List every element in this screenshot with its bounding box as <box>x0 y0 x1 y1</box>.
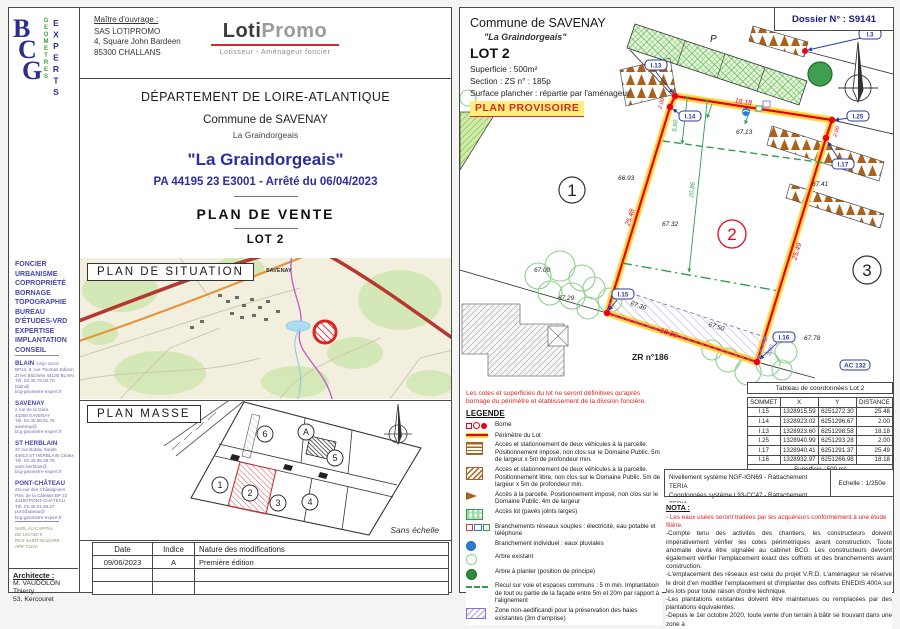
lotipromo-rule <box>211 44 339 46</box>
legend-title: LEGENDE <box>466 409 662 418</box>
service-item: BUREAU <box>15 308 67 318</box>
legend-item: Zone non-aedificandi pour la préservatio… <box>466 607 662 622</box>
coord-y: 6251266.98 <box>818 455 856 465</box>
borne-i13: I.13 <box>651 63 662 70</box>
borne-i16: I.16 <box>779 335 790 342</box>
nota-title: NOTA : <box>666 503 892 512</box>
rev-nature <box>195 569 449 582</box>
borne-icon <box>466 421 490 429</box>
coord-h-dist: DISTANCE <box>856 398 892 408</box>
maitre-ouvrage: Maître d'ouvrage : SAS LOTIPROMO 4, Squa… <box>94 15 181 58</box>
logo-word-geometres: GEOMETRES <box>43 18 49 100</box>
elev-bottom-right: 67.78 <box>804 335 821 342</box>
rev-header-nature: Nature des modifications <box>195 543 449 556</box>
coord-sommet: I.16 <box>748 455 781 465</box>
coord-row: I.16 1328932.97 6251266.98 18.18 <box>748 455 893 465</box>
maitre-label: Maître d'ouvrage : <box>94 15 181 26</box>
borne-i25: I.25 <box>853 114 864 121</box>
elev-trees-b: 67.29 <box>558 295 575 302</box>
zone-non-aedificandi-icon <box>466 607 490 619</box>
acces-libre-icon <box>466 466 490 480</box>
plan-provisoire-badge: PLAN PROVISOIRE <box>470 101 584 117</box>
grass-wedge-hatch <box>460 112 496 170</box>
legend-block: Les cotes et superficies du lot ne seron… <box>466 390 662 625</box>
service-item: IMPLANTATION <box>15 336 67 346</box>
legend-text: Arbre à planter (position de principe) <box>495 568 595 575</box>
coord-row: I.25 1328940.99 6251293.28 2.00 <box>748 436 893 446</box>
rp-commune: Commune de SAVENAY <box>470 16 606 30</box>
parcel-ac-label: AC 132 <box>844 363 866 370</box>
page-left: B C G GEOMETRES EXPERTS FONCIERURBANISME… <box>8 7 452 593</box>
rp-surface-plancher: Surface plancher : répartie par l'aménag… <box>470 88 630 98</box>
nota-paragraph: -Depuis le 1er octobre 2020, toute vente… <box>666 612 892 628</box>
service-item: D'ÉTUDES-VRD <box>15 317 67 327</box>
coord-x: 1328932.97 <box>780 455 818 465</box>
services-list: FONCIERURBANISMECOPROPRIÉTÉBORNAGETOPOGR… <box>15 260 67 355</box>
maitre-line: 4, Square John Bardeen <box>94 37 181 48</box>
logo-word-experts: EXPERTS <box>51 18 61 104</box>
office-pont-chateau: PONT-CHÂTEAU ZIa rue des ChâtaigniersPar… <box>15 480 77 521</box>
nota-paragraph: -L'emplacement des réseaux est celui du … <box>666 571 892 596</box>
lot2-label: 2 <box>247 488 252 498</box>
rev-date <box>93 582 153 595</box>
service-item: COPROPRIÉTÉ <box>15 279 67 289</box>
rev-row <box>93 569 449 582</box>
title-rule <box>234 196 298 197</box>
legend-warning-note: Les cotes et superficies du lot ne seron… <box>466 390 662 406</box>
compass-icon <box>838 42 878 102</box>
architect-name: M. VAUDOLON Thierry <box>13 580 78 596</box>
legend-item: Arbre à planter (position de principe) <box>466 568 662 580</box>
lot3-label: 3 <box>275 498 280 508</box>
dim-jog-left: 2.00 <box>657 97 666 111</box>
lot2-circle: 2 <box>727 225 736 244</box>
nota-block: NOTA : - Les eaux usées seront traitées … <box>666 503 892 629</box>
lotipromo-loti: Loti <box>223 20 262 42</box>
page-right: P <box>459 7 894 593</box>
office-city: ST HERBLAIN <box>15 440 57 447</box>
office-line: bcg-geometre-expert.fr <box>15 515 77 521</box>
left-header: Maître d'ouvrage : SAS LOTIPROMO 4, Squa… <box>80 8 451 79</box>
parcel-zr-label: ZR n°186 <box>632 352 669 362</box>
coord-x: 1328923.02 <box>780 417 818 427</box>
maitre-line: SAS LOTIPROMO <box>94 27 181 38</box>
borne-i15: I.15 <box>618 292 629 299</box>
arbre-existant-icon <box>466 553 490 565</box>
coord-x: 1328940.41 <box>780 445 818 455</box>
coord-row: I.15 1328915.59 6251272.30 25.48 <box>748 407 893 417</box>
rev-nature <box>195 582 449 595</box>
echelle-label: Echelle : 1/250e <box>830 470 893 496</box>
title-commune: Commune de SAVENAY <box>80 114 451 126</box>
dim-recul-depth: 20.86 <box>688 181 697 199</box>
rev-indice <box>153 569 195 582</box>
paves-icon <box>466 508 490 520</box>
coord-sommet: I.17 <box>748 445 781 455</box>
title-rule <box>234 228 298 229</box>
architect-address: 53, Kercouret <box>13 596 78 604</box>
map-lake <box>286 321 310 331</box>
rev-row: 09/06/2023 A Première édition <box>93 556 449 569</box>
legend-item: Accès et stationnement de deux véhicules… <box>466 466 662 488</box>
service-item: URBANISME <box>15 270 67 280</box>
coord-distance: 18.18 <box>856 455 892 465</box>
lotipromo-logo: LotiPromo Lotisseur - Aménageur foncier <box>200 21 350 56</box>
tree-to-plant <box>808 62 832 86</box>
legend-text: Recul sur voie et espaces communs : 5 m … <box>495 582 662 604</box>
rev-header-date: Date <box>93 543 153 556</box>
lot6-label: 6 <box>262 429 267 439</box>
rev-row <box>93 582 449 595</box>
coffret-icon <box>756 106 762 111</box>
legend-item: Recul sur voie et espaces communs : 5 m … <box>466 582 662 604</box>
lot1-label: 1 <box>217 480 222 490</box>
borne-i17: I.17 <box>838 162 849 169</box>
legend-text: Arbre existant <box>495 553 533 560</box>
left-content: Maître d'ouvrage : SAS LOTIPROMO 4, Squa… <box>79 8 451 592</box>
sidebar-divider <box>15 355 59 356</box>
coord-sommet: I.15 <box>748 407 781 417</box>
lotipromo-promo: Promo <box>261 20 327 42</box>
lot5-label: 5 <box>332 453 337 463</box>
title-lieu: La Graindorgeais <box>80 130 451 140</box>
plan-masse-label: PLAN MASSE <box>87 405 201 423</box>
coord-h-sommet: SOMMET <box>748 398 781 408</box>
coord-x: 1328940.99 <box>780 436 818 446</box>
legend-item: Arbre existant <box>466 553 662 565</box>
borne-i3: I.3 <box>866 32 874 39</box>
map-town-label: SAVENAY <box>266 268 292 274</box>
masse-compass-icon <box>384 404 412 444</box>
coord-x: 1328915.59 <box>780 407 818 417</box>
nota-red-line: - Les eaux usées seront traitées par les… <box>666 514 892 530</box>
acces-impose-icon <box>466 441 490 455</box>
legend-text: Accès et stationnement de deux véhicules… <box>495 466 662 488</box>
office-line: bcg-geometre-expert.fr <box>15 429 77 435</box>
elev-top: 67.13 <box>736 129 753 136</box>
coord-y: 6251298.58 <box>818 426 856 436</box>
coord-table: SOMMET X Y DISTANCE I.15 1328915.59 6251… <box>747 397 893 475</box>
legal-block: SARL AU CAPITALDE 194 000 €RCS SAINT-NAZ… <box>15 526 60 550</box>
rp-section: Section : ZS n° : 185p <box>470 76 551 86</box>
dim-jog-right: 2.00 <box>832 125 841 139</box>
elev-right: 67.41 <box>812 181 829 188</box>
reseaux-icon <box>466 523 490 531</box>
service-item: TOPOGRAPHIE <box>15 298 67 308</box>
office-line: bcg-geometre-expert.fr <box>15 389 77 395</box>
office-tag: Siège social <box>36 361 59 366</box>
lot4-label: 4 <box>307 497 312 507</box>
maitre-line: 85300 CHALLANS <box>94 48 181 59</box>
coord-x: 1328923.60 <box>780 426 818 436</box>
lotA-label: A <box>303 427 309 437</box>
legend-text: Branchement individuel : eaux pluviales <box>495 540 604 547</box>
legal-line: APE 7112A <box>15 544 60 550</box>
elev-center: 67.32 <box>662 221 679 228</box>
legend-text: Zone non-aedificandi pour la préservatio… <box>495 607 662 622</box>
coord-h-y: Y <box>818 398 856 408</box>
coffret-icon <box>763 101 770 107</box>
service-item: CONSEIL <box>15 346 67 356</box>
service-item: FONCIER <box>15 260 67 270</box>
coord-distance: 25.49 <box>856 445 892 455</box>
coord-sommet: I.25 <box>748 436 781 446</box>
coord-row: I.14 1328923.02 6251296.67 2.00 <box>748 417 893 427</box>
architect-block: Architecte : M. VAUDOLON Thierry 53, Ker… <box>9 568 78 593</box>
plan-situation-label: PLAN DE SITUATION <box>87 263 254 281</box>
legend-text: Accès à la parcelle. Positionnement impo… <box>495 491 662 506</box>
lotipromo-tagline: Lotisseur - Aménageur foncier <box>200 49 350 56</box>
title-plan-de-vente: PLAN DE VENTE <box>80 206 451 222</box>
lot3-circle: 3 <box>862 261 871 280</box>
elev-trees-a: 67.00 <box>534 267 551 274</box>
coord-y: 6251296.67 <box>818 417 856 427</box>
office-city: SAVENAY <box>15 400 44 407</box>
coord-distance: 25.48 <box>856 407 892 417</box>
lot1-circle: 1 <box>567 181 576 200</box>
legend-text: Accès et stationnement de deux véhicules… <box>495 441 662 463</box>
plan-situation-box: PLAN DE SITUATION <box>80 258 451 401</box>
coord-y: 6251272.30 <box>818 407 856 417</box>
legend-text: Accès lot (pavés joints larges) <box>495 508 577 515</box>
architect-label: Architecte : <box>13 571 78 580</box>
rp-lieu: "La Graindorgeais" <box>484 32 567 42</box>
office-city: PONT-CHÂTEAU <box>15 480 65 487</box>
legend-text: Borne <box>495 421 512 428</box>
rev-indice <box>153 582 195 595</box>
bcg-letters: B C G <box>13 18 41 104</box>
coord-table-title: Tableau de coordonnées Lot 2 <box>747 382 893 394</box>
elev-lot1: 66.93 <box>618 175 635 182</box>
existing-building <box>462 304 568 376</box>
legend-item: Accès lot (pavés joints larges) <box>466 508 662 520</box>
nivellement-line: Nivellement système NGF-IGN69 - Rattache… <box>669 473 826 491</box>
rev-date: 09/06/2023 <box>93 556 153 569</box>
service-item: EXPERTISE <box>15 327 67 337</box>
coord-row: I.13 1328923.60 6251298.58 18.18 <box>748 426 893 436</box>
rev-nature: Première édition <box>195 556 449 569</box>
dim-recul-front: 5.60 <box>671 119 679 132</box>
coord-sommet: I.14 <box>748 417 781 427</box>
coord-y: 6251291.37 <box>818 445 856 455</box>
plan-masse-box: PLAN MASSE <box>80 400 451 541</box>
coord-row: I.17 1328940.41 6251291.37 25.49 <box>748 445 893 455</box>
coord-h-x: X <box>780 398 818 408</box>
office-city: BLAIN <box>15 360 34 367</box>
legend-item: Branchement individuel : eaux pluviales <box>466 540 662 551</box>
coord-distance: 2.00 <box>856 417 892 427</box>
title-permit: PA 44195 23 E3001 - Arrêté du 06/04/2023 <box>80 176 451 188</box>
estate-boundary <box>191 402 421 535</box>
legend-item: Accès et stationnement de deux véhicules… <box>466 441 662 463</box>
sidebar-divider <box>15 521 59 522</box>
office-st-herblain: ST HERBLAIN 37 rue Bobby Sands44813 ST H… <box>15 440 77 475</box>
perimetre-icon <box>466 432 490 438</box>
office-blain: BLAIN Siège social BP14, 9, rue Thomas E… <box>15 360 77 395</box>
lot-number-labels: 1 2 3 <box>559 177 881 284</box>
coord-sommet: I.13 <box>748 426 781 436</box>
service-item: BORNAGE <box>15 289 67 299</box>
reference-box: Nivellement système NGF-IGN69 - Rattache… <box>664 469 894 497</box>
legend-text: Périmètre du Lot <box>495 432 541 439</box>
coordinates-block: Tableau de coordonnées Lot 2 SOMMET X Y … <box>747 382 893 475</box>
parking-label: P <box>710 34 717 45</box>
logo-letter-g: G <box>22 60 41 81</box>
coord-y: 6251293.28 <box>818 436 856 446</box>
rp-lot: LOT 2 <box>470 45 510 61</box>
title-lot: LOT 2 <box>80 234 451 246</box>
legend-item: Borne <box>466 421 662 429</box>
rev-date <box>93 569 153 582</box>
nota-paragraph: -Les plantations existantes doivent être… <box>666 596 892 612</box>
nota-paragraph: -Compte tenu des activités des chantiers… <box>666 530 892 571</box>
bcg-logo: B C G GEOMETRES EXPERTS <box>13 18 61 104</box>
dossier-number: Dossier N° : S9141 <box>774 8 893 31</box>
eaux-pluviales-icon <box>466 540 490 551</box>
acces-parcelle-icon <box>466 491 490 500</box>
recul-line-icon <box>466 582 490 588</box>
sans-echelle-label: Sans échelle <box>390 525 439 535</box>
legend-item: Accès à la parcelle. Positionnement impo… <box>466 491 662 506</box>
office-savenay: SAVENAY 2 rue de la Gare44260 SAVENAYTél… <box>15 400 77 435</box>
rev-header-indice: Indice <box>153 543 195 556</box>
legend-item: Branchements réseaux souples : électrici… <box>466 523 662 538</box>
title-project: "La Graindorgeais" <box>80 150 451 170</box>
arbre-a-planter-icon <box>466 568 490 580</box>
title-departement: DÉPARTEMENT DE LOIRE-ATLANTIQUE <box>80 90 451 104</box>
legend-text: Branchements réseaux souples : électrici… <box>495 523 662 538</box>
borne-i14: I.14 <box>685 114 696 121</box>
office-line: BP14, 9, rue Thomas Edison <box>15 367 77 373</box>
site-marker <box>314 321 336 343</box>
revisions-table: Date Indice Nature des modifications 09/… <box>92 542 449 595</box>
rp-superficie: Superficie : 500m² <box>470 64 537 74</box>
coord-distance: 18.18 <box>856 426 892 436</box>
office-line: bcg-geometre-expert.fr <box>15 469 77 475</box>
legend-item: Périmètre du Lot <box>466 432 662 439</box>
coord-distance: 2.00 <box>856 436 892 446</box>
rev-indice: A <box>153 556 195 569</box>
